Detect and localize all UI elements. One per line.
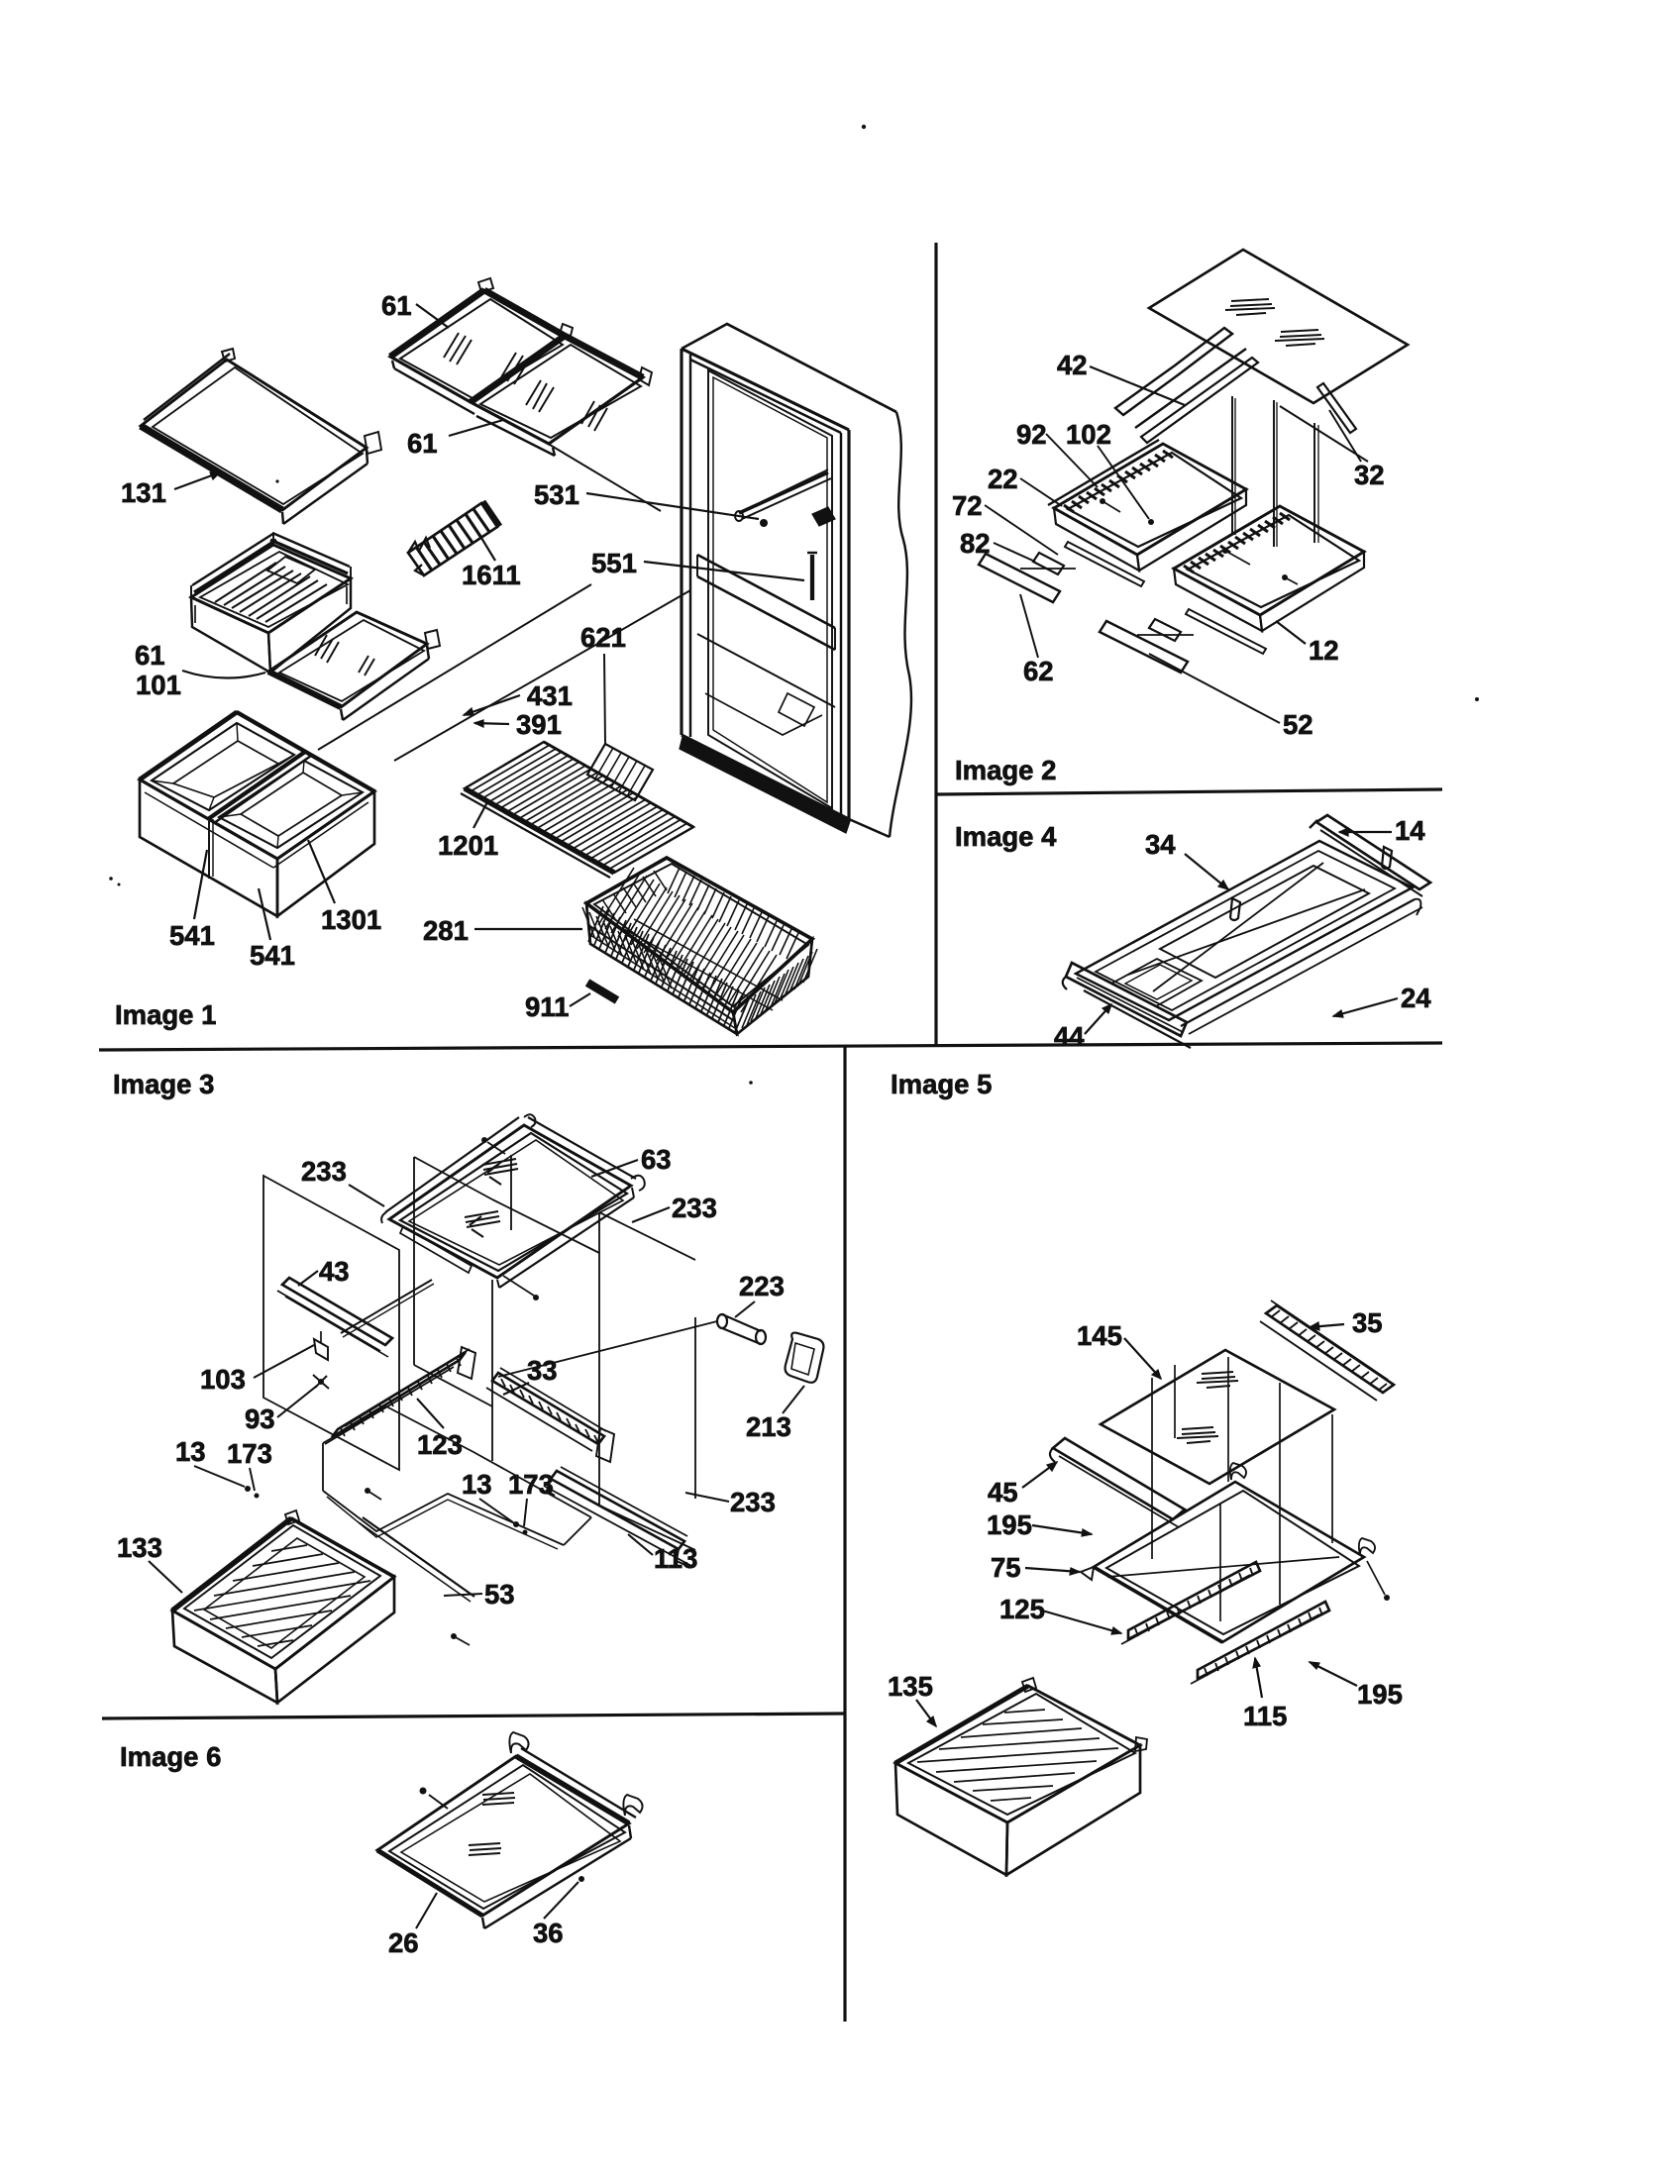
svg-text:115: 115 <box>1243 1701 1287 1731</box>
svg-text:33: 33 <box>527 1355 558 1386</box>
svg-text:53: 53 <box>484 1579 515 1610</box>
svg-text:61: 61 <box>381 290 412 321</box>
svg-text:61: 61 <box>135 640 165 671</box>
svg-text:541: 541 <box>250 940 295 971</box>
svg-text:34: 34 <box>1145 829 1176 860</box>
svg-text:213: 213 <box>746 1411 791 1442</box>
svg-text:551: 551 <box>591 548 637 578</box>
svg-text:43: 43 <box>319 1256 350 1287</box>
svg-text:12: 12 <box>1309 635 1339 666</box>
svg-text:911: 911 <box>525 991 569 1022</box>
svg-text:391: 391 <box>516 709 562 740</box>
svg-text:1301: 1301 <box>321 904 381 935</box>
svg-text:223: 223 <box>739 1271 785 1301</box>
svg-text:26: 26 <box>388 1927 419 1958</box>
svg-text:233: 233 <box>301 1156 347 1187</box>
svg-text:35: 35 <box>1352 1307 1383 1338</box>
svg-text:72: 72 <box>952 490 983 521</box>
svg-text:82: 82 <box>960 528 991 559</box>
svg-text:531: 531 <box>534 479 579 510</box>
svg-text:621: 621 <box>580 622 626 653</box>
svg-text:63: 63 <box>641 1144 672 1175</box>
svg-text:14: 14 <box>1395 815 1425 846</box>
svg-text:92: 92 <box>1016 419 1047 450</box>
svg-text:42: 42 <box>1057 350 1088 380</box>
svg-text:Image 5: Image 5 <box>891 1069 992 1099</box>
svg-text:125: 125 <box>999 1594 1045 1624</box>
svg-text:13: 13 <box>175 1436 206 1467</box>
svg-text:32: 32 <box>1354 460 1385 490</box>
svg-text:101: 101 <box>136 670 181 700</box>
svg-text:133: 133 <box>117 1532 162 1563</box>
svg-text:103: 103 <box>200 1364 246 1395</box>
svg-text:Image 3: Image 3 <box>113 1069 214 1099</box>
svg-text:233: 233 <box>672 1193 717 1223</box>
svg-text:281: 281 <box>423 915 469 946</box>
svg-text:61: 61 <box>407 428 438 459</box>
svg-text:541: 541 <box>169 920 215 951</box>
svg-text:195: 195 <box>987 1509 1032 1540</box>
svg-text:24: 24 <box>1401 983 1431 1013</box>
svg-text:Image 6: Image 6 <box>120 1741 221 1772</box>
svg-text:102: 102 <box>1066 419 1111 450</box>
svg-text:52: 52 <box>1283 709 1313 740</box>
svg-text:195: 195 <box>1357 1679 1403 1710</box>
svg-text:36: 36 <box>533 1918 564 1948</box>
svg-text:1611: 1611 <box>462 560 521 590</box>
svg-text:145: 145 <box>1077 1320 1122 1351</box>
svg-text:62: 62 <box>1023 656 1054 686</box>
svg-text:Image 4: Image 4 <box>955 821 1057 852</box>
svg-text:93: 93 <box>245 1404 275 1434</box>
svg-text:131: 131 <box>121 477 166 508</box>
svg-text:Image 1: Image 1 <box>115 999 216 1030</box>
svg-text:13: 13 <box>462 1469 492 1500</box>
svg-text:173: 173 <box>227 1438 272 1469</box>
svg-text:233: 233 <box>730 1487 776 1517</box>
svg-text:75: 75 <box>991 1552 1021 1583</box>
svg-text:113: 113 <box>654 1543 697 1574</box>
svg-text:1201: 1201 <box>438 830 498 861</box>
svg-text:135: 135 <box>888 1671 933 1702</box>
svg-text:45: 45 <box>988 1477 1018 1508</box>
svg-text:44: 44 <box>1054 1021 1085 1052</box>
svg-text:Image 2: Image 2 <box>955 755 1056 785</box>
svg-text:173: 173 <box>508 1469 554 1500</box>
svg-text:431: 431 <box>527 680 573 711</box>
svg-text:22: 22 <box>988 464 1018 494</box>
